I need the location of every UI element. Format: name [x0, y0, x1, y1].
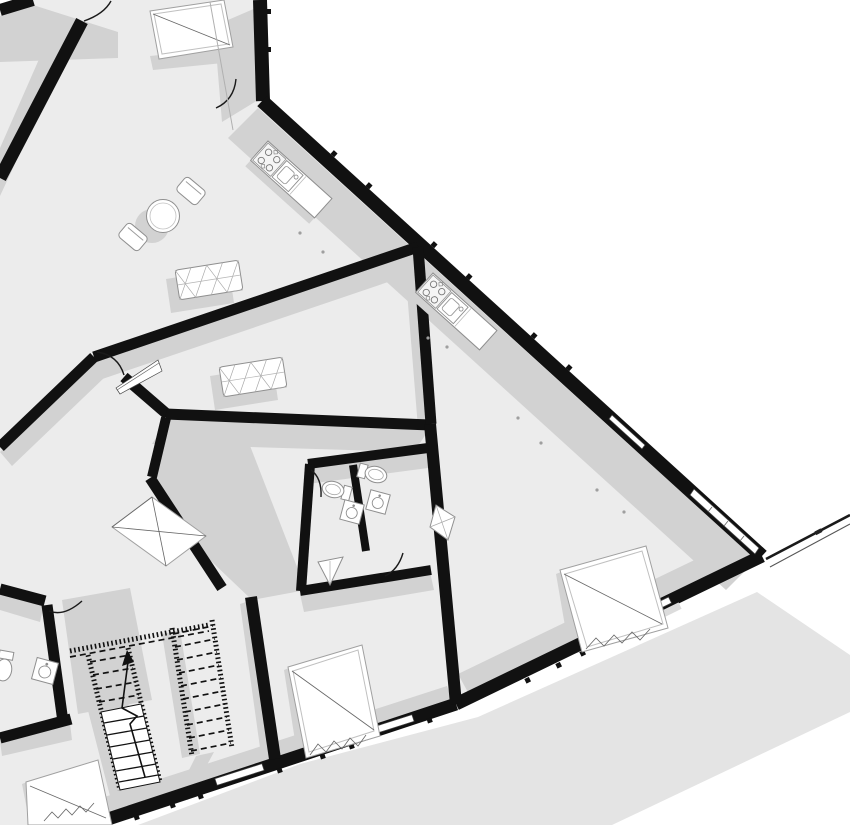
point-marker — [321, 250, 324, 253]
point-marker — [539, 441, 542, 444]
point-marker — [622, 510, 625, 513]
window-tick-icon — [555, 662, 562, 669]
railing-line — [766, 515, 850, 559]
point-marker — [595, 488, 598, 491]
window-tick-icon — [524, 677, 531, 684]
wash-basin — [366, 490, 390, 514]
point-marker — [445, 345, 448, 348]
round-table — [147, 200, 180, 233]
window-tick-icon — [265, 47, 271, 52]
point-marker — [298, 231, 301, 234]
window-tick-icon — [265, 9, 271, 14]
point-marker — [516, 416, 519, 419]
point-marker — [426, 336, 429, 339]
railing-line-2 — [770, 524, 850, 567]
floor-plan-drawing — [0, 0, 850, 825]
wall-top-vertical — [260, 0, 263, 101]
floor-plan-canvas — [0, 0, 850, 825]
balcony-railing — [766, 515, 850, 567]
wash-basin — [340, 500, 364, 524]
